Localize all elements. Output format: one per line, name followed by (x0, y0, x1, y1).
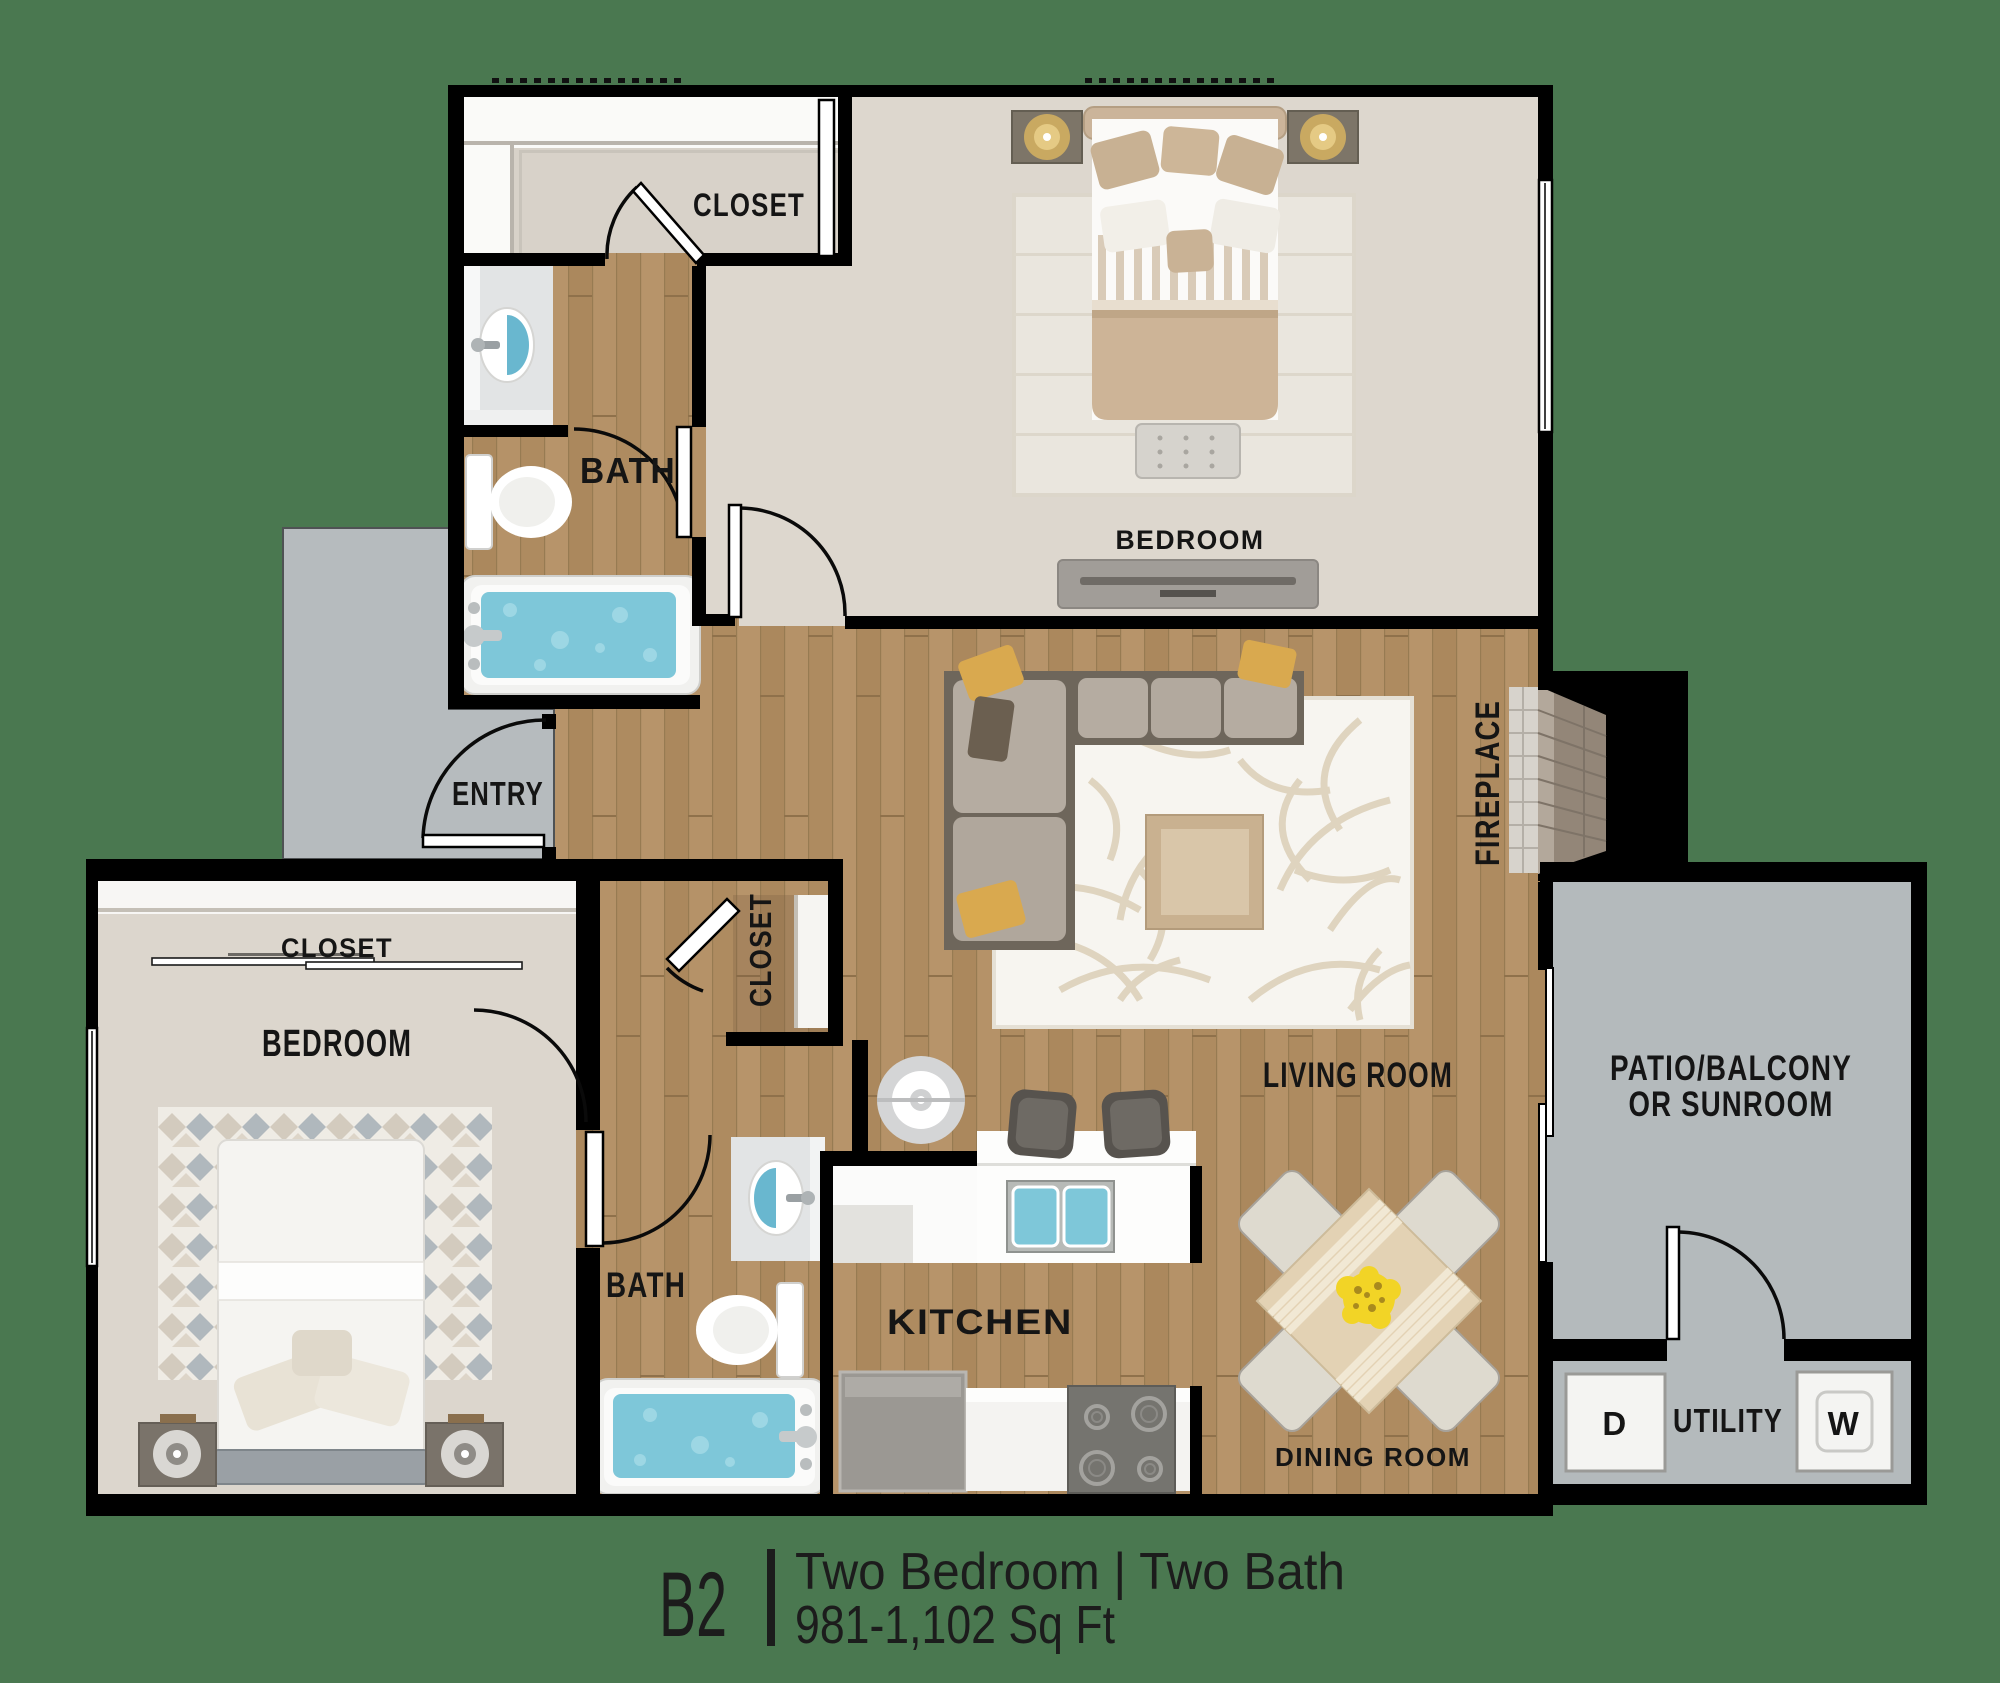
svg-text:B2: B2 (659, 1554, 727, 1656)
svg-text:ENTRY: ENTRY (452, 775, 544, 812)
svg-text:CLOSET: CLOSET (693, 187, 805, 223)
svg-text:PATIO/BALCONY: PATIO/BALCONY (1610, 1049, 1852, 1088)
svg-text:CLOSET: CLOSET (743, 893, 778, 1007)
svg-text:DINING ROOM: DINING ROOM (1275, 1442, 1471, 1472)
svg-text:W: W (1828, 1405, 1861, 1442)
svg-text:BEDROOM: BEDROOM (262, 1023, 412, 1065)
svg-text:BATH: BATH (580, 450, 676, 491)
svg-text:LIVING ROOM: LIVING ROOM (1263, 1056, 1453, 1095)
svg-text:CLOSET: CLOSET (281, 933, 393, 963)
svg-text:KITCHEN: KITCHEN (887, 1303, 1073, 1342)
svg-text:BEDROOM: BEDROOM (1116, 525, 1265, 555)
svg-text:981-1,102 Sq Ft: 981-1,102 Sq Ft (795, 1595, 1115, 1655)
svg-text:BATH: BATH (606, 1266, 686, 1305)
svg-text:UTILITY: UTILITY (1673, 1402, 1783, 1439)
svg-text:Two Bedroom | Two Bath: Two Bedroom | Two Bath (795, 1543, 1345, 1601)
svg-text:D: D (1602, 1405, 1627, 1442)
svg-text:OR SUNROOM: OR SUNROOM (1629, 1085, 1834, 1124)
svg-text:FIREPLACE: FIREPLACE (1469, 700, 1507, 866)
